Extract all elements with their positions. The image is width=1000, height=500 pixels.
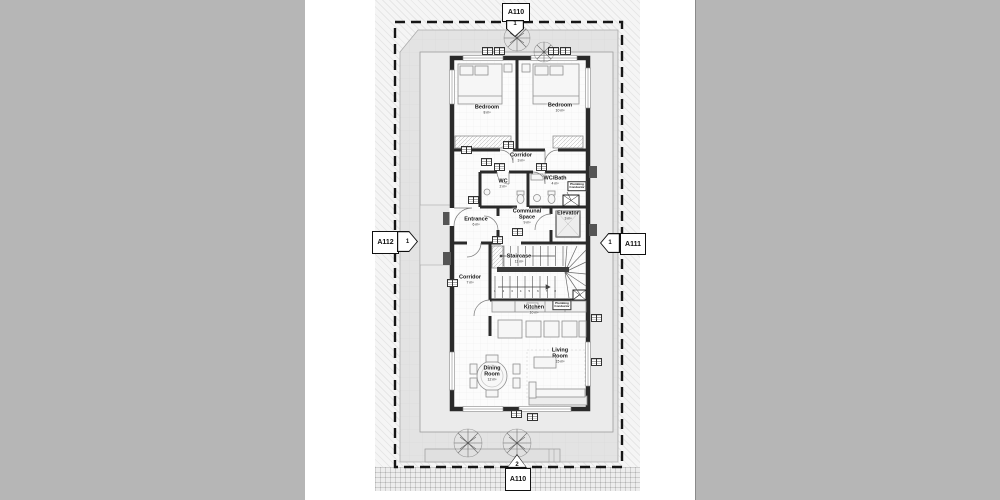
callout-a110-bottom-detail[interactable]: 2 xyxy=(507,454,527,468)
callout-a111-right[interactable]: A111 xyxy=(620,233,646,255)
room-label-communal-space: Communal Space9 m² xyxy=(509,209,545,224)
room-label-wc: WC2 m² xyxy=(498,179,507,188)
door-tag xyxy=(503,141,514,149)
stair-tread-numbers: 12 34 56 78 xyxy=(494,289,556,293)
callout-a110-bottom[interactable]: A110 xyxy=(505,468,531,491)
plan-sheet: Bedroom8 m² Bedroom10 m² Corridor3 m² WC… xyxy=(305,0,695,500)
window-tag xyxy=(591,358,602,366)
room-label-corridor-left: Corridor7 m² xyxy=(459,275,481,284)
room-label-bedroom-2: Bedroom10 m² xyxy=(548,103,572,112)
callout-a111-right-detail[interactable]: 1 xyxy=(600,233,620,253)
door-tag xyxy=(481,158,492,166)
window-tag xyxy=(548,47,559,55)
room-label-kitchen: Kitchen10 m² xyxy=(524,305,544,314)
door-tag xyxy=(512,228,523,236)
room-label-corridor-top: Corridor3 m² xyxy=(510,153,532,162)
window-tag xyxy=(447,279,458,287)
tree-icon xyxy=(454,429,482,457)
window-tag xyxy=(494,47,505,55)
door-tag xyxy=(468,196,479,204)
callout-a112-left-detail[interactable]: 1 xyxy=(397,231,418,252)
room-label-elevator: Elevator3 m² xyxy=(557,211,579,220)
door-tag xyxy=(461,146,472,154)
plumbing-conductor-note-lower: PlumbingConductor xyxy=(552,300,571,310)
callout-a112-left[interactable]: A112 xyxy=(372,231,399,254)
door-tag xyxy=(494,163,505,171)
room-label-wc-bath: WC/Bath4 m² xyxy=(544,176,567,185)
window-tag xyxy=(482,47,493,55)
door-tag xyxy=(492,236,503,244)
tree-icon xyxy=(503,429,531,457)
room-label-bedroom-1: Bedroom8 m² xyxy=(475,105,499,114)
wardrobe-right xyxy=(553,136,583,148)
plumbing-conductor-note-upper: PlumbingConductor xyxy=(567,181,586,191)
page-margin-left xyxy=(0,0,306,500)
window-tag xyxy=(527,413,538,421)
drawing-canvas: Bedroom8 m² Bedroom10 m² Corridor3 m² WC… xyxy=(0,0,1000,500)
window-tag xyxy=(560,47,571,55)
room-label-entrance: Entrance6 m² xyxy=(464,217,488,226)
callout-a110-top-detail[interactable]: 1 xyxy=(506,20,524,37)
door-tag xyxy=(536,163,547,171)
window-tag xyxy=(511,410,522,418)
page-margin-right xyxy=(695,0,1000,500)
room-label-staircase: Staircase11 m² xyxy=(507,254,531,263)
coat-closet xyxy=(492,246,504,268)
room-label-living-room: Living Room15 m² xyxy=(546,348,574,363)
room-label-dining-room: Dining Room12 m² xyxy=(478,366,506,381)
window-tag xyxy=(591,314,602,322)
